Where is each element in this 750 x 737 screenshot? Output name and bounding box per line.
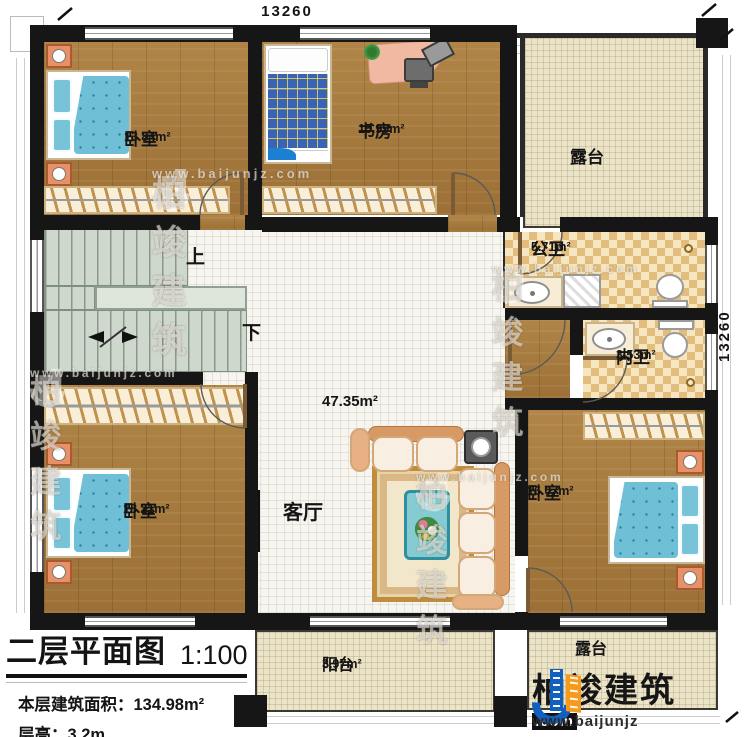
sofa-cushion — [416, 436, 458, 472]
sink-basin — [514, 281, 550, 304]
nightstand — [676, 566, 704, 590]
window — [30, 240, 44, 312]
page-title: 二层平面图 — [6, 626, 166, 671]
stairs-upper-flight — [44, 228, 188, 286]
window-sill-lines-left — [16, 58, 25, 613]
closet — [44, 387, 245, 425]
wall — [262, 217, 448, 232]
hallway-floor — [505, 320, 570, 398]
double-bed — [46, 70, 131, 160]
nightstand — [46, 442, 72, 466]
desk-plant — [364, 44, 380, 60]
drawing-scale: 1:100 — [180, 640, 248, 671]
dimension-right: 13260 — [716, 300, 733, 362]
wall — [570, 320, 583, 355]
towel-hook — [684, 244, 693, 253]
closet — [262, 186, 437, 214]
towel-hook — [686, 378, 695, 387]
door-gap-floor — [448, 215, 497, 232]
wall — [505, 398, 718, 410]
pillow — [680, 522, 700, 556]
sliding-door — [310, 616, 450, 627]
stairs-down-label: 下 — [242, 318, 261, 345]
brand-url: www.baijunjz.com — [532, 713, 676, 730]
window — [300, 27, 430, 40]
wall — [505, 308, 718, 320]
shower — [563, 274, 601, 308]
window — [30, 468, 44, 572]
pillow — [52, 476, 72, 512]
double-bed — [46, 468, 131, 558]
sofa-cushion — [458, 556, 496, 598]
sliding-door — [560, 616, 667, 627]
floor-plan-canvas: 卧室 13.84m² 书房 15.99m² 露台 公卫 5.71m² 内卫 3.… — [0, 0, 750, 737]
mattress — [614, 482, 678, 558]
mattress — [74, 76, 129, 154]
sofa-armrest — [452, 594, 504, 610]
wall — [30, 215, 200, 230]
sofa-armrest — [350, 428, 370, 472]
toilet-bowl — [656, 274, 684, 300]
sofa-cushion — [372, 436, 414, 472]
double-bed — [608, 476, 705, 564]
wall — [503, 232, 505, 308]
floor-area-text: 本层建筑面积：134.98m² — [18, 691, 256, 715]
pillow — [52, 118, 72, 152]
window — [85, 27, 233, 40]
title-divider — [6, 682, 247, 683]
monitor-stand — [410, 82, 428, 88]
stairs-lower-flight — [44, 310, 247, 372]
pillow — [52, 78, 72, 114]
wall — [515, 410, 528, 556]
sofa-cushion — [458, 468, 496, 510]
nightstand — [46, 560, 72, 584]
dimension-top: 13260 — [237, 3, 337, 20]
table-lamp — [471, 437, 491, 457]
closet — [583, 412, 705, 440]
single-bed — [264, 44, 332, 164]
toilet-tank — [652, 300, 688, 308]
mattress — [74, 474, 129, 552]
toilet-bowl — [662, 332, 688, 358]
column — [696, 18, 728, 48]
title-block: 二层平面图 1:100 本层建筑面积：134.98m² 层高：3.2m — [6, 626, 256, 734]
closet — [44, 186, 230, 214]
floor-height-text: 层高：3.2m — [18, 721, 256, 737]
pillow — [680, 484, 700, 518]
wall — [245, 372, 258, 630]
plaid-blanket — [268, 74, 328, 148]
brand-block: 柏竣建筑 www.baijunjz.com — [532, 663, 676, 730]
title-underline — [6, 674, 247, 678]
sink-basin — [592, 328, 626, 350]
column — [494, 696, 527, 727]
stairs-landing-rail — [95, 286, 247, 310]
window — [705, 245, 718, 303]
blanket-fold — [268, 148, 296, 160]
toilet-tank — [658, 320, 694, 330]
wall — [497, 217, 520, 232]
sofa-back-right — [494, 462, 510, 596]
nightstand — [46, 162, 72, 186]
terrace-parapet — [517, 33, 708, 38]
terrace-parapet — [520, 33, 525, 217]
terrace-top-floor — [523, 36, 705, 228]
stairs-side-steps — [44, 286, 95, 310]
table-flowers — [414, 514, 440, 544]
balcony-floor — [255, 630, 495, 712]
wall — [248, 25, 262, 217]
sofa-cushion — [458, 512, 496, 554]
pillow — [52, 516, 72, 550]
nightstand — [46, 44, 72, 68]
nightstand — [676, 450, 704, 474]
stairs-up-label: 上 — [186, 242, 205, 269]
wall — [500, 25, 517, 217]
terrace-parapet — [703, 33, 708, 228]
wall — [30, 372, 203, 385]
door-gap-floor — [200, 215, 245, 230]
pillow — [268, 48, 328, 72]
wall — [560, 217, 718, 232]
wall — [245, 215, 262, 230]
